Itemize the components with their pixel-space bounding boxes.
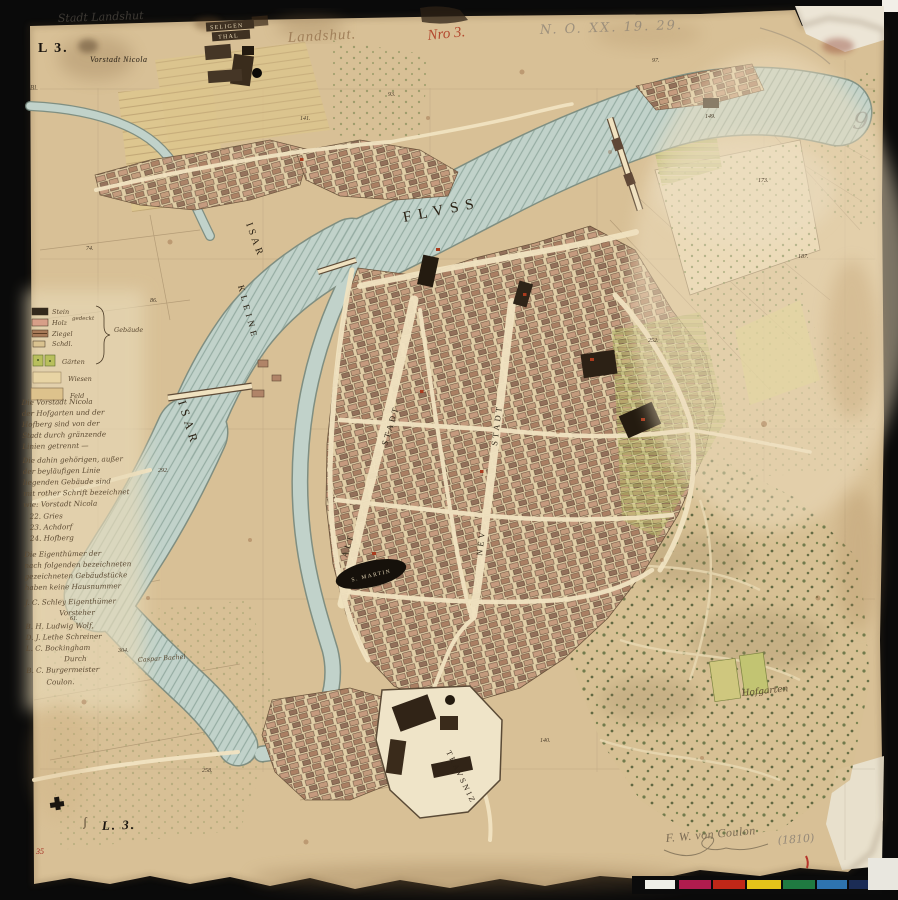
parcel-number: 140. [540, 737, 551, 744]
note-line: 22. Gries [29, 511, 64, 521]
margin-mark: Bl. [30, 84, 38, 92]
note-line: der beyläufigen Linie [23, 466, 101, 476]
legend-label-stein: Stein [52, 308, 69, 316]
note-line: 24. Hofberg [29, 533, 74, 543]
legend-gedeckt: gedeckt [72, 316, 95, 322]
parcel-number: 252. [648, 338, 659, 344]
note-line: B. H. Ludwig Wolf, [24, 621, 93, 631]
note-line: nach folgenden bezeichneten [24, 559, 131, 570]
scanned-map-page: Stein Holz Ziegel Schdl. gedeckt Gebäude… [0, 0, 898, 900]
note-line: Die Eigenthümer der [23, 549, 102, 559]
note-line: gezeichneten Gebäudstücke [25, 570, 128, 581]
legend-label-garten: Gärten [62, 358, 85, 366]
residenz-block [580, 350, 617, 378]
parcel-number: 304. [117, 647, 129, 654]
parcel-number: 141. [300, 115, 311, 122]
parcel-number: 187. [798, 254, 809, 260]
note-line: Coulon. [46, 677, 74, 686]
legend-swatch-wiesen [33, 372, 61, 383]
note-line: B. C. Burgermeister [25, 665, 100, 675]
sheet-number-bottom: L. 3. [101, 817, 137, 833]
parcel-number: 292. [158, 468, 169, 474]
colorbar-chip-white [645, 880, 675, 889]
parcel-number: 74. [86, 245, 94, 252]
note-line: Die dahin gehörigen, außer [22, 454, 124, 465]
parcel-number: 61. [70, 616, 78, 622]
label-vorstadt-nicola: Vorstadt Nicola [90, 55, 148, 64]
red-inventory-number: 35 [35, 847, 44, 856]
legend-label-schindel: Schdl. [52, 340, 73, 348]
legend-swatch-schindel [33, 341, 45, 347]
parcel-number: 86. [150, 298, 158, 304]
parcel-number: 149. [705, 113, 716, 120]
note-line: der Hofgarten und der [22, 408, 105, 418]
map-canvas: Stein Holz Ziegel Schdl. gedeckt Gebäude… [0, 0, 898, 900]
note-line: Linien getrennt — [21, 441, 88, 451]
white-tab [868, 858, 898, 890]
note-line: J. C. Schley Eigenthümer [23, 596, 117, 607]
legend-swatch-stein [32, 308, 48, 315]
parcel-number: 97. [652, 58, 660, 64]
legend-label-ziegel: Ziegel [51, 330, 73, 338]
note-line: 23. Achdorf [29, 522, 74, 532]
legend-swatch-holz [32, 319, 48, 326]
parcel-number: 173. [758, 178, 769, 184]
legend-label-wiesen: Wiesen [68, 375, 92, 383]
note-line: wie: Vorstadt Nicola [23, 499, 97, 509]
note-line: L. C. Bockingham [25, 643, 91, 653]
parcel-number: 258. [202, 768, 213, 774]
colorbar-chip-red [713, 880, 745, 889]
legend-label-holz: Holz [51, 319, 68, 327]
note-line: Hofberg sind von der [21, 419, 100, 429]
colorbar-chip-blue [817, 880, 847, 889]
note-line: liegenden Gebäude sind [23, 476, 112, 487]
colorbar-chip-crimson [679, 880, 711, 889]
note-line: haben keine Hausnummer [25, 581, 122, 592]
note-line: Durch [63, 654, 87, 663]
corner-white-sliver [882, 0, 898, 12]
year-pencil: (1810) [777, 831, 814, 847]
legend-group-label: Gebäude [114, 326, 143, 334]
ink-blot [252, 68, 262, 78]
sheet-number-stamp: L 3. [38, 41, 69, 56]
colorbar-chip-green [783, 880, 815, 889]
note-line: Stadt durch gränzende [22, 430, 106, 440]
note-line: D. J. Lethe Schreiner [25, 632, 103, 642]
note-line: mit rother Schrift bezeichnet [23, 487, 130, 498]
note-line: Die Vorstadt Nicola [21, 397, 93, 407]
parcel-number: 93. [388, 92, 396, 98]
colorbar-chip-yellow [747, 880, 781, 889]
